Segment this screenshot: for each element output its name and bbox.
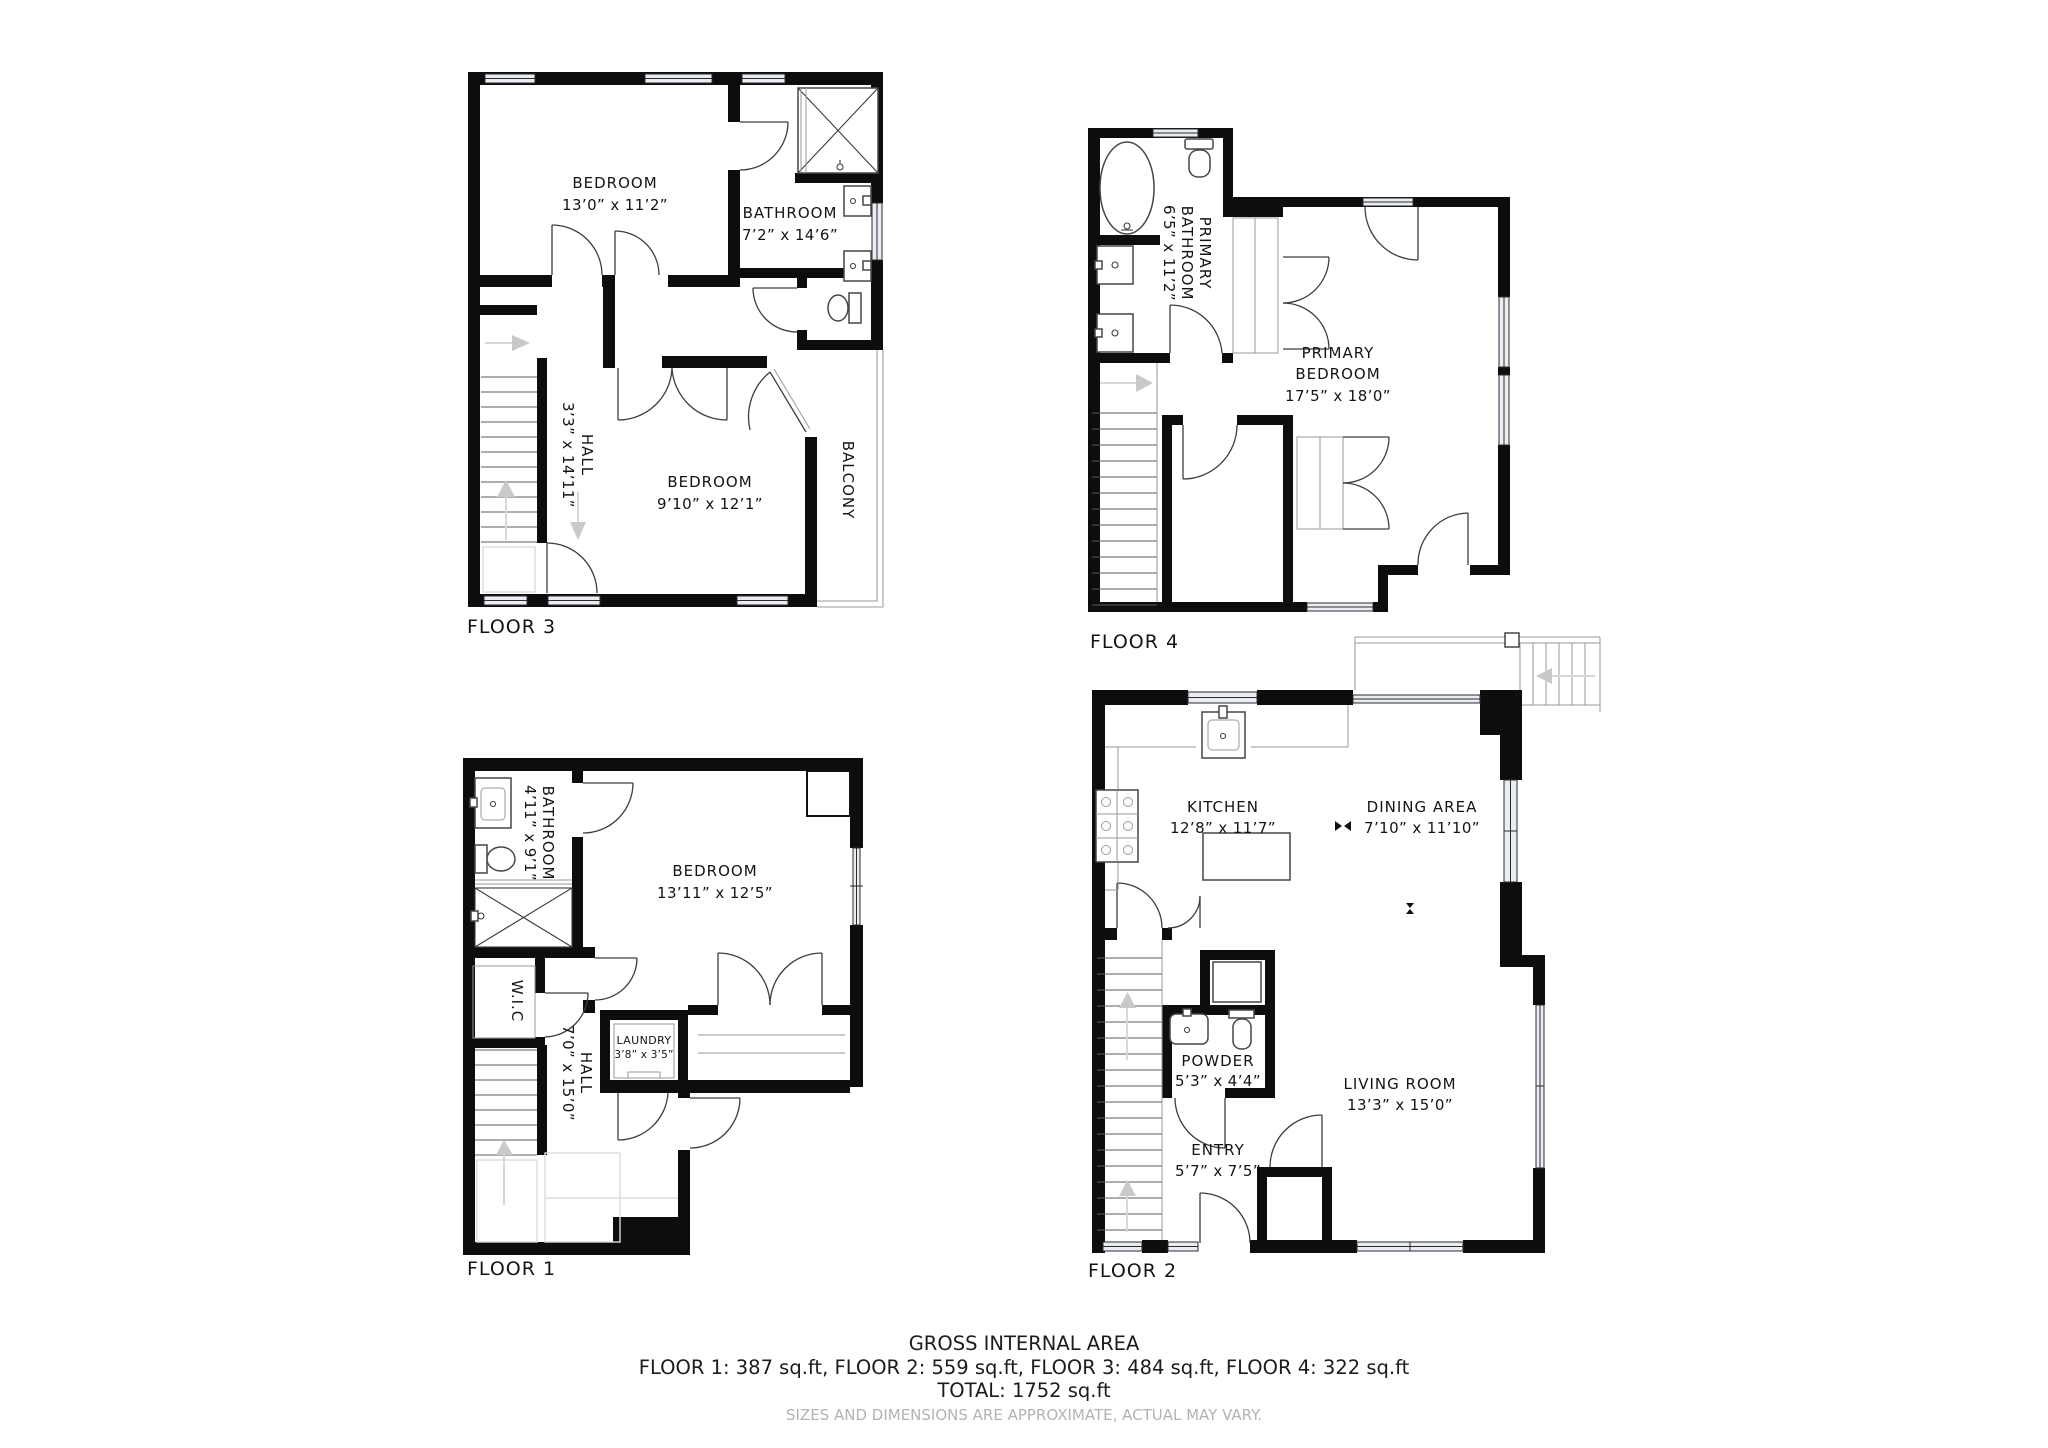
room-dims-hall: 3’3” x 14’11” — [559, 402, 577, 508]
room-label-balcony: BALCONY — [839, 441, 857, 520]
kitchen-island — [1203, 833, 1290, 880]
room-label-primary-bedroom-1: PRIMARY — [1302, 344, 1375, 362]
closet-shelves-icon — [698, 1035, 845, 1053]
toilet-icon — [475, 845, 515, 873]
room-label-hall: HALL — [577, 1052, 595, 1094]
floorplan-canvas: BEDROOM 13’0” x 11’2” BATHROOM 7’2” x 14… — [0, 0, 2048, 1448]
shower-icon — [798, 88, 878, 173]
stairs-icon — [1097, 940, 1162, 1240]
room-label-wic: W.I.C — [508, 980, 526, 1023]
room-label-laundry: LAUNDRY — [616, 1034, 671, 1047]
room-label-bedroom1: BEDROOM — [572, 174, 657, 192]
room-label-primary-bedroom-2: BEDROOM — [1295, 365, 1380, 383]
room-label-powder: POWDER — [1181, 1052, 1254, 1070]
floor1-windows — [850, 848, 863, 925]
sink-icon — [470, 778, 511, 828]
room-dims-bedroom: 13’11” x 12’5” — [657, 884, 773, 902]
floor2-plan: KITCHEN 12’8” x 11’7” DINING AREA 7’10” … — [1085, 630, 1610, 1295]
appliance-icon — [1213, 962, 1261, 1002]
toilet-icon — [1185, 139, 1213, 177]
floor2-label: FLOOR 2 — [1088, 1260, 1177, 1282]
room-label-kitchen: KITCHEN — [1187, 798, 1259, 816]
floor1-plan: BATHROOM 4’11” x 9’1” BEDROOM 13’11” x 1… — [455, 750, 885, 1290]
room-label-primary-bathroom-2: BATHROOM — [1178, 206, 1196, 301]
room-dims-primary-bathroom: 6’5” x 11’2” — [1160, 205, 1178, 301]
stove-icon — [1096, 790, 1138, 862]
floor3-plan: BEDROOM 13’0” x 11’2” BATHROOM 7’2” x 14… — [455, 60, 895, 650]
room-label-entry: ENTRY — [1191, 1141, 1245, 1159]
toilet-icon — [828, 293, 861, 323]
room-dims-hall: 7’0” x 15’0” — [559, 1025, 577, 1121]
floor4-plan: PRIMARY BATHROOM 6’5” x 11’2” PRIMARY BE… — [1080, 120, 1530, 665]
floor1-label: FLOOR 1 — [467, 1258, 556, 1280]
room-dims-living: 13’3” x 15’0” — [1347, 1096, 1453, 1114]
shower-icon — [471, 880, 572, 947]
room-dims-bathroom: 7’2” x 14’6” — [742, 226, 838, 244]
summary-block: GROSS INTERNAL AREA FLOOR 1: 387 sq.ft, … — [0, 1332, 2048, 1427]
summary-total: TOTAL: 1752 sq.ft — [0, 1379, 2048, 1403]
room-label-hall: HALL — [578, 434, 596, 476]
room-label-living: LIVING ROOM — [1343, 1075, 1456, 1093]
powder-toilet-icon — [1229, 1010, 1254, 1049]
sink-icon — [844, 186, 871, 281]
room-dims-bedroom2: 9’10” x 12’1” — [657, 495, 763, 513]
room-label-dining: DINING AREA — [1367, 798, 1478, 816]
room-dims-laundry: 3’8” x 3’5” — [614, 1049, 673, 1061]
stairs-icon — [1092, 363, 1157, 605]
floor3-label: FLOOR 3 — [467, 616, 556, 638]
room-dims-primary-bedroom: 17’5” x 18’0” — [1285, 387, 1391, 405]
powder-sink-icon — [1170, 1009, 1208, 1044]
summary-areas: FLOOR 1: 387 sq.ft, FLOOR 2: 559 sq.ft, … — [0, 1356, 2048, 1380]
room-dims-bedroom1: 13’0” x 11’2” — [562, 196, 668, 214]
summary-disclaimer: SIZES AND DIMENSIONS ARE APPROXIMATE, AC… — [0, 1404, 2048, 1428]
room-label-bedroom2: BEDROOM — [667, 473, 752, 491]
room-label-bathroom: BATHROOM — [743, 204, 838, 222]
room-dims-entry: 5’7” x 7’5” — [1175, 1162, 1261, 1180]
room-dims-dining: 7’10” x 11’10” — [1364, 819, 1480, 837]
floor2-walls — [1092, 690, 1545, 1253]
sink-icon — [1095, 246, 1133, 352]
room-label-primary-bathroom-1: PRIMARY — [1196, 217, 1214, 290]
room-dims-kitchen: 12’8” x 11’7” — [1170, 819, 1276, 837]
summary-title: GROSS INTERNAL AREA — [0, 1332, 2048, 1356]
room-label-bedroom: BEDROOM — [672, 862, 757, 880]
bathtub-icon — [1100, 142, 1154, 234]
room-label-bathroom: BATHROOM — [539, 786, 557, 881]
room-dims-bathroom: 4’11” x 9’1” — [521, 785, 539, 881]
room-dims-powder: 5’3” x 4’4” — [1175, 1072, 1261, 1090]
kitchen-sink-icon — [1202, 706, 1245, 758]
